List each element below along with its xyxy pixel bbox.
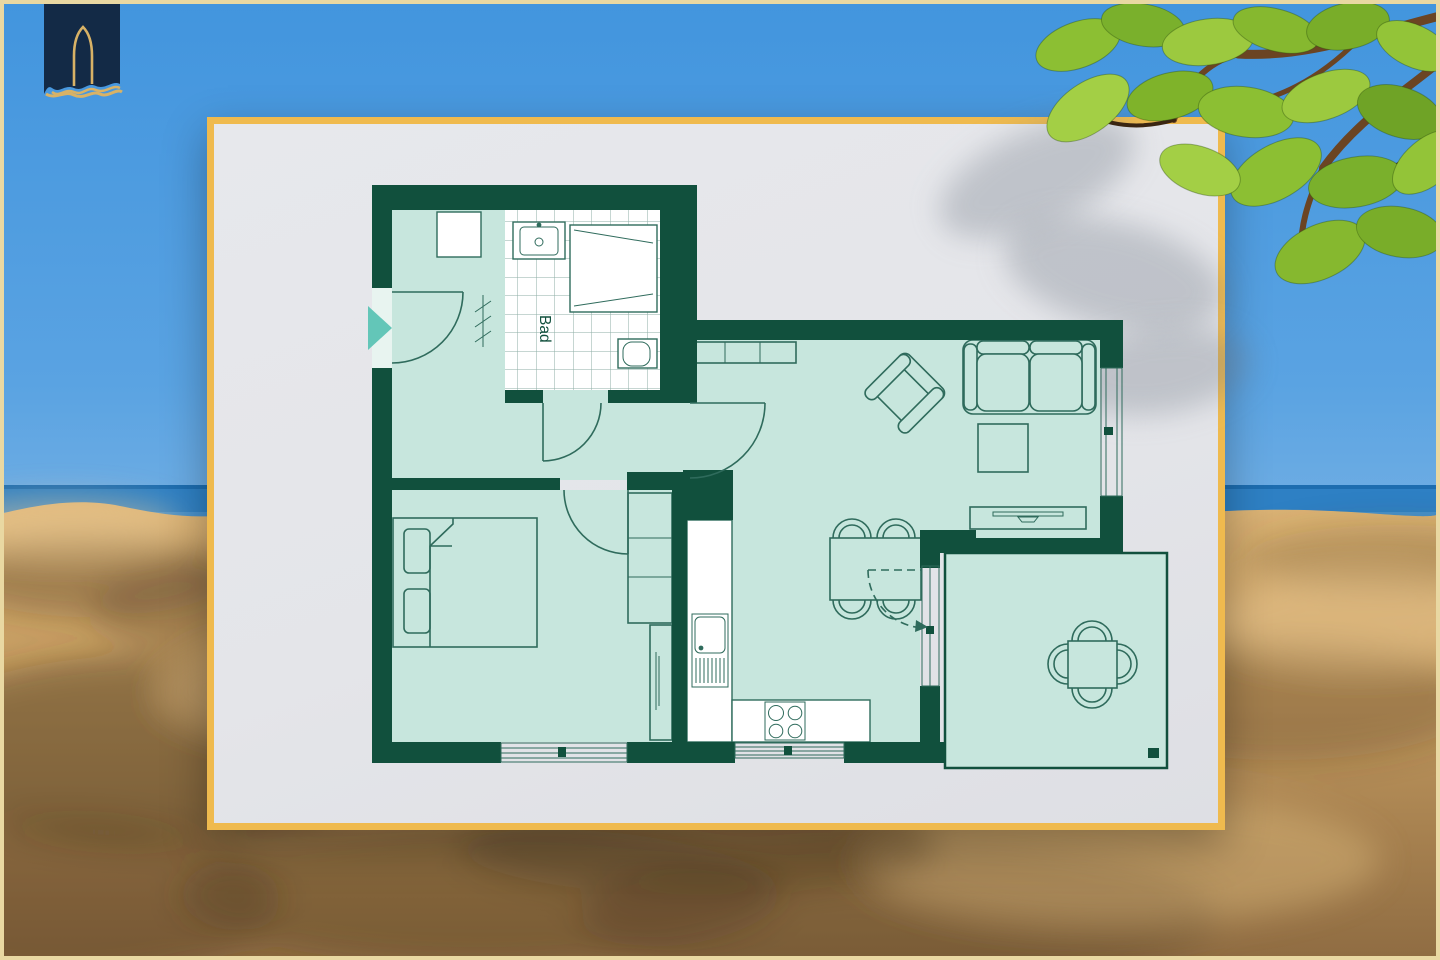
beach-floorplan-scene: Bad (0, 0, 1440, 960)
leaves (1029, 0, 1440, 297)
logo-flag (44, 0, 120, 94)
leaves-branch (1018, 0, 1440, 320)
brand-logo (36, 0, 132, 112)
